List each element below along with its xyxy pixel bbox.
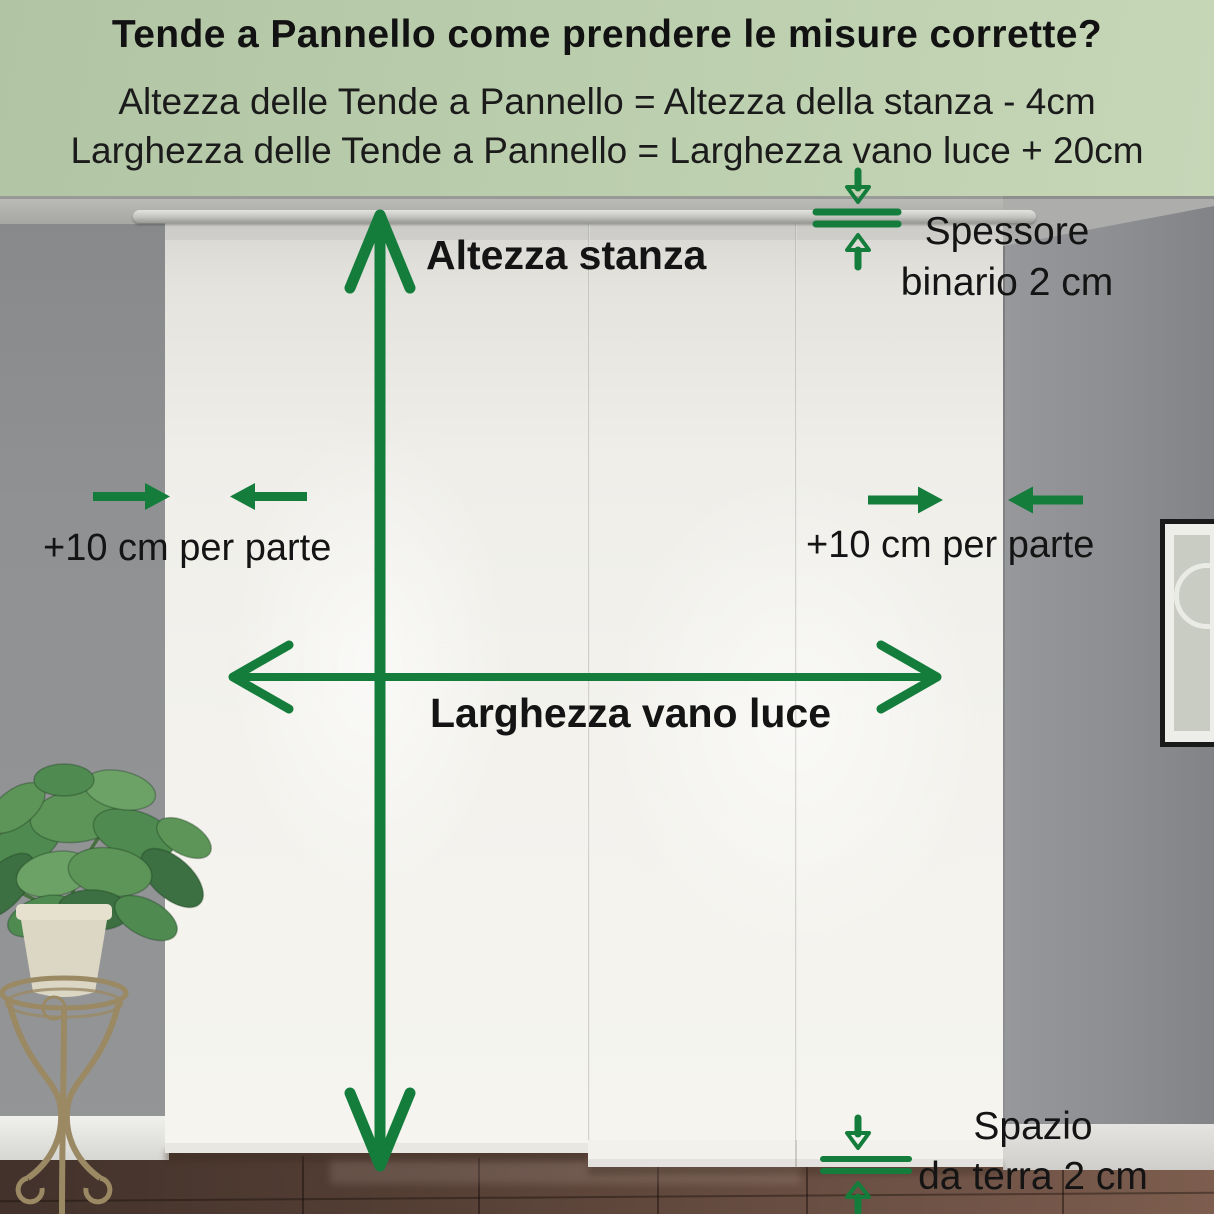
- page-title: Tende a Pannello come prendere le misure…: [0, 13, 1214, 57]
- header-divider: [0, 196, 1214, 199]
- opening-width-label: Larghezza vano luce: [430, 690, 831, 737]
- plant-pot: [16, 904, 112, 997]
- floor-gap-label-line2: da terra 2 cm: [900, 1152, 1166, 1202]
- side-margin-right-label: +10 cm per parte: [806, 524, 1094, 567]
- potted-plant: [0, 746, 220, 1214]
- infographic-page: Tende a Pannello come prendere le misure…: [0, 0, 1214, 1214]
- plant-stand: [2, 978, 126, 1214]
- formula-height: Altezza delle Tende a Pannello = Altezza…: [0, 81, 1214, 123]
- formula-width: Larghezza delle Tende a Pannello = Largh…: [0, 130, 1214, 172]
- panel-seam: [795, 216, 797, 1153]
- picture-art: [1174, 535, 1210, 731]
- floor-gap-label: Spazio da terra 2 cm: [900, 1102, 1166, 1202]
- picture-frame: [1160, 519, 1214, 747]
- panel-curtains: [165, 216, 1003, 1153]
- window-light-glow: [220, 416, 520, 916]
- floor-tile-seam: [302, 1156, 304, 1214]
- floor-gap-label-line1: Spazio: [900, 1102, 1166, 1152]
- rail-thickness-label: Spessore binario 2 cm: [876, 206, 1138, 308]
- picture-circle-motif: [1174, 563, 1210, 629]
- panel-seam: [588, 216, 590, 1153]
- rail-thickness-label-line1: Spessore: [876, 206, 1138, 257]
- side-margin-left-label: +10 cm per parte: [43, 527, 331, 570]
- panel-seam: [380, 216, 382, 1153]
- header-banner: Tende a Pannello come prendere le misure…: [0, 0, 1214, 196]
- room-height-label: Altezza stanza: [426, 232, 706, 279]
- rail-thickness-label-line2: binario 2 cm: [876, 257, 1138, 308]
